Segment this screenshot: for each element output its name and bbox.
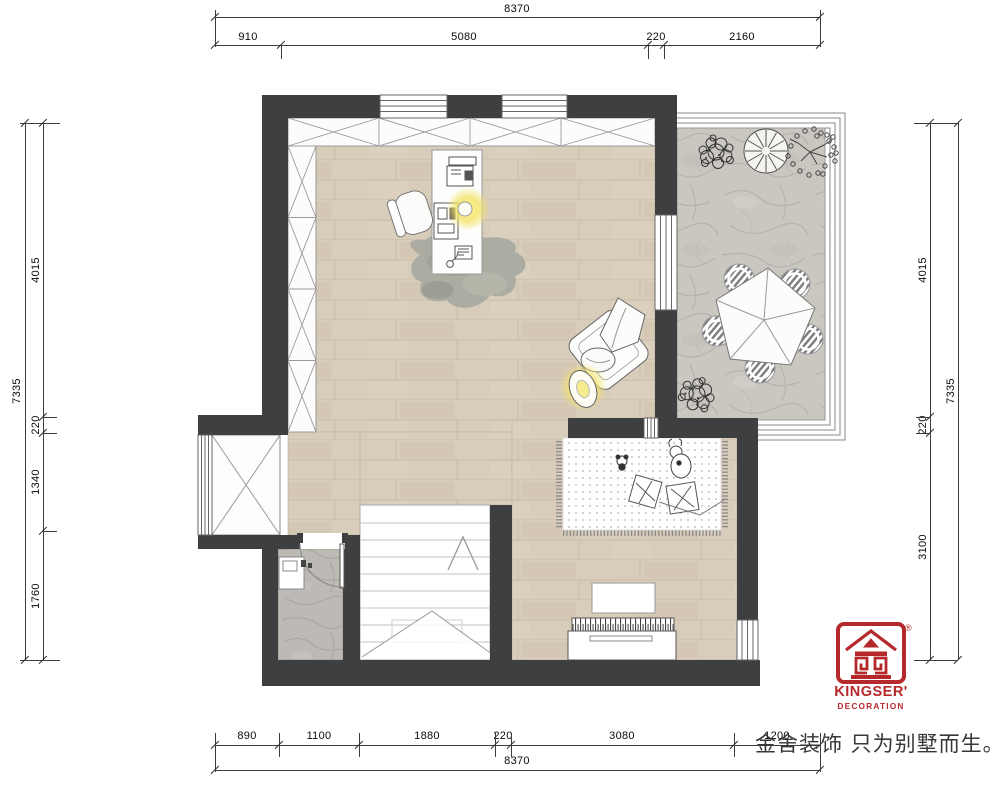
dim-right-total: 7335 xyxy=(945,378,957,404)
dimension-line xyxy=(648,45,649,59)
logo-text: KINGSER' xyxy=(834,684,908,700)
dimension-line xyxy=(916,433,930,434)
brand-slogan: 金舍装饰 只为别墅而生。 xyxy=(755,728,1000,758)
dimension-line xyxy=(958,123,959,660)
dimension-line xyxy=(511,733,512,757)
dim-left-seg-2: 1340 xyxy=(30,469,42,495)
dimension-line xyxy=(43,123,44,660)
dim-left-seg-3: 1760 xyxy=(30,583,42,609)
dimension-line xyxy=(215,10,216,47)
dimension-line xyxy=(820,10,821,47)
dimension-line xyxy=(734,733,735,757)
dimension-line xyxy=(359,733,360,757)
dim-top-total: 8370 xyxy=(504,3,530,15)
dim-left-seg-0: 4015 xyxy=(30,257,42,283)
dimension-line xyxy=(215,745,820,746)
dimension-line xyxy=(215,17,820,18)
dimension-line xyxy=(914,660,958,661)
dim-left-total: 7335 xyxy=(11,378,23,404)
floorplan-page: { "dimensions": { "top": {"total": "8370… xyxy=(0,0,1000,790)
dim-bottom-total: 8370 xyxy=(504,755,530,767)
dim-right-seg-2: 3100 xyxy=(917,534,929,560)
dimension-line xyxy=(916,417,930,418)
dim-top-seg-3: 2160 xyxy=(729,31,755,43)
dimension-line xyxy=(914,123,958,124)
dimension-line xyxy=(43,433,57,434)
dimension-line xyxy=(279,733,280,757)
dim-top-seg-0: 910 xyxy=(238,31,257,43)
dim-bottom-seg-4: 3080 xyxy=(609,730,635,742)
dim-right-seg-0: 4015 xyxy=(917,257,929,283)
registered-mark: ® xyxy=(905,623,912,633)
dimension-line xyxy=(25,123,26,660)
dimension-line xyxy=(664,45,665,59)
dim-top-seg-1: 5080 xyxy=(451,31,477,43)
dimension-line xyxy=(215,770,820,771)
dimension-line xyxy=(20,660,60,661)
dimension-line xyxy=(215,733,216,772)
dimension-line xyxy=(20,123,60,124)
dimension-line xyxy=(281,45,282,59)
dimension-line xyxy=(930,123,931,660)
dim-bottom-seg-0: 890 xyxy=(237,730,256,742)
logo-subtext: DECORATION xyxy=(837,701,904,711)
kingser-logo: ® KINGSER' DECORATION xyxy=(834,618,914,718)
dim-bottom-seg-3: 220 xyxy=(493,730,512,742)
dim-bottom-seg-1: 1100 xyxy=(307,730,332,742)
dimension-line xyxy=(495,733,496,757)
dim-bottom-seg-2: 1880 xyxy=(414,730,440,742)
dimension-line xyxy=(43,531,57,532)
dimension-line xyxy=(215,45,820,46)
dimension-line xyxy=(43,417,57,418)
